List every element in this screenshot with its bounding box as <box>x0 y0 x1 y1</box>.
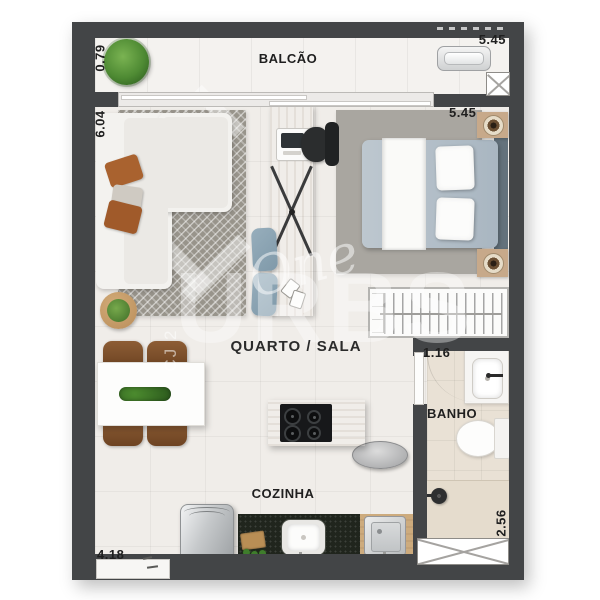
room-label-kitchen: COZINHA <box>248 486 318 501</box>
dim-kitchen-width: 4.18 <box>97 547 124 562</box>
dim-bathroom-width: 1.16 <box>423 345 450 360</box>
dim-living-length: 6.04 <box>93 110 108 137</box>
floor-plan: One URBS CJ 2 BALCÃO QUARTO / SALA BANHO… <box>0 0 600 600</box>
room-label-balcony: BALCÃO <box>245 51 331 66</box>
dim-bathroom-length: 2.56 <box>494 509 509 536</box>
dim-balcony-width: 5.45 <box>462 32 506 47</box>
room-label-bedroom-living: QUARTO / SALA <box>226 338 366 355</box>
room-label-bathroom: BANHO <box>427 406 477 421</box>
dim-balcony-depth: 0.79 <box>93 44 108 71</box>
dim-bedroom-width: 5.45 <box>449 105 476 120</box>
